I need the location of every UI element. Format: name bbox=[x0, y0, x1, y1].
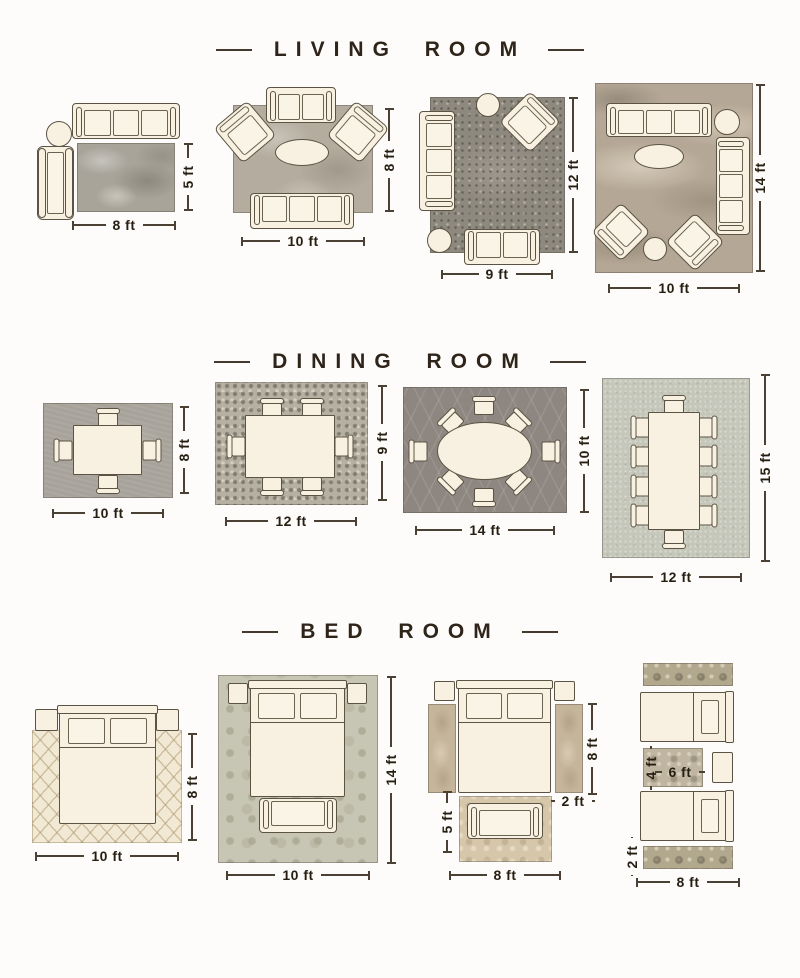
dining-chair bbox=[54, 439, 73, 463]
runner-width-dimension: 2 ft bbox=[551, 793, 595, 809]
section-title-bed-room: BED ROOM bbox=[0, 619, 800, 645]
dining-chair bbox=[300, 477, 324, 496]
height-dimension: 14 ft bbox=[383, 676, 399, 864]
sofa-cushion bbox=[84, 110, 111, 136]
living-room-heading: LIVING ROOM bbox=[274, 38, 526, 62]
sofa-cushion bbox=[503, 232, 528, 258]
nightstand bbox=[712, 752, 733, 783]
runner-rug bbox=[428, 704, 456, 793]
round-accent-table bbox=[46, 121, 72, 147]
dining-chair bbox=[472, 488, 496, 507]
sofa-cushion bbox=[426, 175, 452, 199]
sofa-cushion bbox=[317, 196, 342, 222]
width-dimension: 12 ft bbox=[610, 569, 742, 585]
height-dimension: 14 ft bbox=[752, 84, 768, 272]
dining-table bbox=[648, 412, 700, 530]
foot-rug-width-dimension: 8 ft bbox=[449, 867, 561, 883]
runner-width-dimension: 2 ft bbox=[624, 838, 640, 876]
width-dimension: 8 ft bbox=[72, 217, 176, 233]
sofa-cushion bbox=[262, 196, 287, 222]
sofa-cushion bbox=[426, 123, 452, 147]
title-dash-left bbox=[216, 49, 252, 52]
oval-coffee-table bbox=[634, 144, 684, 169]
title-dash-right bbox=[522, 631, 558, 634]
height-dimension: 15 ft bbox=[757, 374, 773, 562]
pillow bbox=[300, 693, 336, 719]
dining-chair bbox=[542, 440, 561, 464]
height-dimension: 12 ft bbox=[565, 97, 581, 253]
sofa-cushion bbox=[113, 110, 140, 136]
width-dimension: 10 ft bbox=[241, 233, 365, 249]
height-dimension: 5 ft bbox=[180, 143, 196, 211]
chaise-cushion bbox=[47, 152, 64, 214]
round-accent-table bbox=[643, 237, 667, 261]
pillow bbox=[110, 718, 147, 744]
title-dash-right bbox=[548, 49, 584, 52]
three-seat-sofa-vertical bbox=[419, 111, 455, 211]
rug-size-guide: LIVING ROOM 8 ft 5 ft 10 ft 8 ft 9 ft bbox=[0, 0, 800, 978]
height-dimension: 8 ft bbox=[184, 733, 200, 841]
runner-rug bbox=[643, 846, 733, 869]
loveseat bbox=[266, 87, 336, 123]
dining-chair bbox=[227, 435, 246, 459]
bench bbox=[467, 803, 543, 839]
sofa-cushion bbox=[141, 110, 168, 136]
twin-bed bbox=[640, 791, 733, 841]
three-seat-sofa bbox=[72, 103, 180, 139]
width-dimension: 10 ft bbox=[52, 505, 164, 521]
dining-table bbox=[73, 425, 142, 475]
oval-dining-table bbox=[437, 422, 532, 480]
nightstand bbox=[228, 683, 248, 704]
bed bbox=[458, 681, 551, 793]
runner-rug bbox=[555, 704, 583, 793]
title-dash-left bbox=[214, 361, 250, 364]
round-accent-table bbox=[476, 93, 500, 117]
sofa-cushion bbox=[674, 110, 700, 134]
loveseat bbox=[464, 229, 540, 265]
dining-chair bbox=[335, 435, 354, 459]
sofa-cushion bbox=[646, 110, 672, 134]
oval-coffee-table bbox=[275, 139, 329, 166]
sofa-cushion bbox=[719, 174, 743, 197]
sofa-cushion bbox=[719, 200, 743, 223]
nightstand bbox=[554, 681, 575, 701]
dining-table bbox=[245, 415, 335, 478]
width-dimension: 12 ft bbox=[225, 513, 357, 529]
width-dimension: 10 ft bbox=[35, 848, 179, 864]
title-dash-right bbox=[550, 361, 586, 364]
three-seat-sofa bbox=[606, 103, 712, 137]
mid-rug-width-dimension: 6 ft bbox=[655, 764, 705, 780]
dining-chair bbox=[631, 475, 650, 499]
bench bbox=[259, 798, 337, 833]
pillow bbox=[507, 693, 543, 719]
sofa-cushion bbox=[476, 232, 501, 258]
living-rug-8x5 bbox=[77, 143, 175, 212]
title-dash-left bbox=[242, 631, 278, 634]
three-seat-sofa-vertical bbox=[716, 137, 750, 235]
sofa-cushion bbox=[426, 149, 452, 173]
pillow bbox=[466, 693, 502, 719]
dining-chair bbox=[662, 530, 686, 549]
dining-chair bbox=[631, 504, 650, 528]
nightstand bbox=[347, 683, 367, 704]
width-dimension: 9 ft bbox=[441, 266, 553, 282]
bench-cushion bbox=[479, 810, 531, 836]
dining-chair bbox=[96, 475, 120, 494]
dining-chair bbox=[699, 504, 718, 528]
bed bbox=[250, 681, 345, 797]
dining-chair bbox=[409, 440, 428, 464]
pillow bbox=[68, 718, 105, 744]
runner-length-dimension: 8 ft bbox=[584, 703, 600, 795]
section-title-dining-room: DINING ROOM bbox=[0, 349, 800, 375]
three-seat-sofa bbox=[250, 193, 354, 229]
height-dimension: 10 ft bbox=[576, 389, 592, 513]
runner-length-dimension: 8 ft bbox=[636, 874, 740, 890]
round-accent-table bbox=[427, 228, 452, 253]
dining-chair bbox=[631, 416, 650, 440]
dining-chair bbox=[699, 445, 718, 469]
sofa-cushion bbox=[289, 196, 314, 222]
dining-chair bbox=[699, 416, 718, 440]
nightstand bbox=[35, 709, 58, 731]
dining-room-heading: DINING ROOM bbox=[272, 350, 528, 374]
height-dimension: 8 ft bbox=[176, 406, 192, 494]
width-dimension: 14 ft bbox=[415, 522, 555, 538]
sofa-cushion bbox=[719, 149, 743, 172]
width-dimension: 10 ft bbox=[226, 867, 370, 883]
chaise-lounge bbox=[37, 146, 74, 220]
twin-bed bbox=[640, 692, 733, 742]
nightstand bbox=[434, 681, 455, 701]
bed bbox=[59, 706, 156, 824]
section-title-living-room: LIVING ROOM bbox=[0, 37, 800, 63]
sofa-cushion bbox=[618, 110, 644, 134]
dining-chair bbox=[699, 475, 718, 499]
height-dimension: 9 ft bbox=[374, 385, 390, 501]
dining-chair bbox=[260, 477, 284, 496]
dining-chair bbox=[143, 439, 162, 463]
sofa-cushion bbox=[302, 94, 324, 120]
width-dimension: 10 ft bbox=[608, 280, 740, 296]
foot-rug-height-dimension: 5 ft bbox=[439, 791, 455, 853]
bench-cushion bbox=[271, 801, 325, 826]
bed-room-heading: BED ROOM bbox=[300, 620, 500, 644]
round-accent-table bbox=[714, 109, 740, 135]
runner-rug bbox=[643, 663, 733, 686]
sofa-cushion bbox=[278, 94, 300, 120]
dining-chair bbox=[472, 396, 496, 415]
pillow bbox=[258, 693, 294, 719]
nightstand bbox=[156, 709, 179, 731]
dining-chair bbox=[631, 445, 650, 469]
height-dimension: 8 ft bbox=[381, 108, 397, 212]
